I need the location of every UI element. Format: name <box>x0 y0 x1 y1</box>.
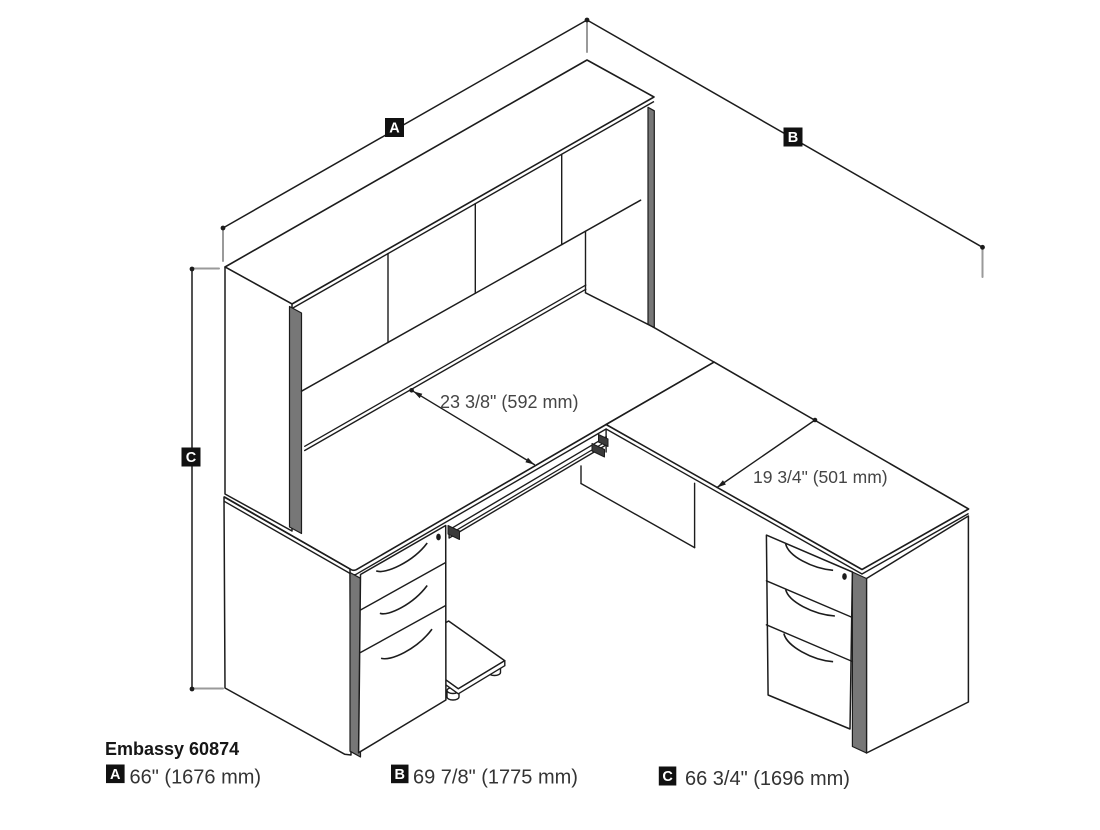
svg-text:66" (1676 mm): 66" (1676 mm) <box>130 767 262 789</box>
svg-text:23 3/8" (592 mm): 23 3/8" (592 mm) <box>440 392 578 412</box>
svg-text:19 3/4" (501 mm): 19 3/4" (501 mm) <box>753 467 888 487</box>
svg-text:B: B <box>395 767 405 783</box>
svg-text:B: B <box>788 130 798 146</box>
svg-text:C: C <box>186 450 197 466</box>
svg-text:Embassy 60874: Embassy 60874 <box>105 739 239 759</box>
svg-text:66 3/4" (1696 mm): 66 3/4" (1696 mm) <box>685 768 850 790</box>
svg-text:69 7/8" (1775 mm): 69 7/8" (1775 mm) <box>413 767 578 789</box>
svg-text:A: A <box>389 121 400 137</box>
svg-text:C: C <box>662 769 673 785</box>
svg-text:A: A <box>110 767 121 783</box>
